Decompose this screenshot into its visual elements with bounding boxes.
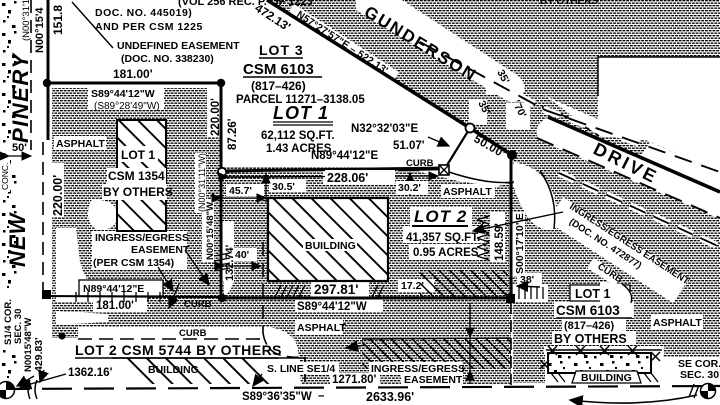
svg-text:LOT 1: LOT 1 [273, 103, 329, 123]
svg-text:ASPHALT: ASPHALT [443, 186, 492, 198]
svg-text:BY OTHERS: BY OTHERS [540, 0, 598, 7]
svg-text:N00°15'48"W: N00°15'48"W [205, 202, 216, 260]
svg-text:S89°36'35"W: S89°36'35"W [242, 391, 312, 403]
svg-text:N89°44'12"E: N89°44'12"E [83, 283, 144, 295]
svg-text:181.00': 181.00' [113, 67, 153, 81]
svg-text:30.5': 30.5' [272, 181, 295, 193]
svg-text:(N00°31'1: (N00°31'1 [21, 0, 32, 41]
svg-text:50': 50' [12, 142, 27, 154]
svg-text:(817–426): (817–426) [251, 79, 306, 93]
svg-text:CSM 1354: CSM 1354 [108, 169, 165, 183]
svg-text:0.95 ACRES: 0.95 ACRES [413, 247, 479, 259]
svg-text:38': 38' [520, 274, 534, 286]
svg-text:CONC.: CONC. [0, 163, 10, 190]
svg-text:N89°44'12"E: N89°44'12"E [311, 150, 378, 162]
svg-text:220.00': 220.00' [51, 175, 65, 216]
svg-text:429.83': 429.83' [33, 337, 45, 372]
svg-text:(817–426): (817–426) [564, 320, 614, 332]
svg-text:PINERY: PINERY [8, 52, 33, 143]
svg-text:BY OTHERS: BY OTHERS [103, 185, 173, 199]
svg-text:(S89°28'49"W): (S89°28'49"W) [94, 101, 160, 112]
svg-text:–: – [318, 390, 325, 402]
svg-text:BY OTHERS: BY OTHERS [554, 332, 627, 346]
svg-text:DOC. NO. 445019): DOC. NO. 445019) [95, 7, 192, 19]
svg-text:BUILDING: BUILDING [305, 240, 356, 252]
svg-text:45.7': 45.7' [229, 185, 252, 197]
svg-text:220.00': 220.00' [210, 98, 222, 136]
svg-text:228.06': 228.06' [327, 171, 368, 185]
svg-text:CURB: CURB [406, 158, 434, 169]
svg-text:87.26': 87.26' [227, 118, 239, 150]
svg-text:NEW: NEW [5, 211, 30, 267]
svg-text:EASEMENT: EASEMENT [131, 244, 190, 256]
svg-text:AND PER CSM 1225: AND PER CSM 1225 [95, 21, 203, 33]
svg-text:181.00': 181.00' [96, 300, 134, 312]
svg-text:ASPHALT: ASPHALT [56, 138, 105, 150]
svg-text:(PER CSM 1354): (PER CSM 1354) [93, 257, 174, 269]
svg-text:SEC. 30: SEC. 30 [680, 369, 719, 381]
svg-text:LOT 2: LOT 2 [414, 207, 467, 226]
svg-text:CURB: CURB [184, 299, 212, 310]
svg-text:1271.80': 1271.80' [332, 374, 377, 386]
svg-text:41,357 SQ.FT.: 41,357 SQ.FT. [406, 232, 480, 244]
svg-text:BUILDING: BUILDING [581, 372, 632, 384]
svg-text:N32°32'03"E: N32°32'03"E [351, 123, 418, 135]
svg-text:1362.16': 1362.16' [68, 367, 113, 379]
svg-text:UNDEFINED EASEMENT: UNDEFINED EASEMENT [117, 40, 240, 52]
svg-text:CSM 6103: CSM 6103 [243, 61, 314, 78]
svg-text:62,112 SQ.FT.: 62,112 SQ.FT. [261, 130, 335, 142]
svg-text:(DOC. NO. 338230): (DOC. NO. 338230) [121, 53, 214, 65]
svg-text:151.8: 151.8 [51, 5, 65, 35]
svg-text:40': 40' [235, 249, 249, 261]
svg-text:17.2': 17.2' [401, 280, 424, 292]
svg-text:297.81': 297.81' [314, 282, 359, 297]
svg-text:CURB: CURB [179, 328, 207, 339]
svg-text:S. LINE SE1/4: S. LINE SE1/4 [267, 363, 335, 375]
svg-text:S89°44'12"W: S89°44'12"W [297, 301, 367, 313]
svg-text:BUILDING: BUILDING [148, 364, 199, 376]
svg-text:ASPHALT: ASPHALT [653, 317, 702, 329]
svg-text:S00°17'10"E: S00°17'10"E [514, 213, 526, 274]
svg-text:ASPHALT: ASPHALT [297, 322, 346, 334]
svg-text:N00°15'4: N00°15'4 [34, 7, 46, 53]
svg-text:EASEMENT: EASEMENT [404, 374, 463, 386]
svg-text:132.74': 132.74' [224, 244, 236, 281]
svg-text:LOT 3: LOT 3 [259, 42, 304, 58]
svg-text:30.2': 30.2' [398, 182, 421, 194]
svg-text:LOT 2 CSM 5744 BY OTHERS: LOT 2 CSM 5744 BY OTHERS [75, 342, 282, 358]
svg-text:(VOL 256 REC. P. OF 1223: (VOL 256 REC. P. OF 1223 [178, 0, 313, 8]
svg-text:51.07': 51.07' [393, 140, 425, 152]
svg-text:CSM 6103: CSM 6103 [556, 303, 620, 318]
svg-text:148.59': 148.59' [494, 223, 506, 261]
svg-text:2633.96': 2633.96' [366, 390, 414, 404]
svg-text:S89°44'12"W: S89°44'12"W [91, 88, 155, 100]
svg-text:LOT 1: LOT 1 [121, 148, 155, 162]
svg-text:LOT 1: LOT 1 [575, 287, 610, 301]
svg-text:INGRESS/EGRESS: INGRESS/EGRESS [95, 232, 189, 244]
